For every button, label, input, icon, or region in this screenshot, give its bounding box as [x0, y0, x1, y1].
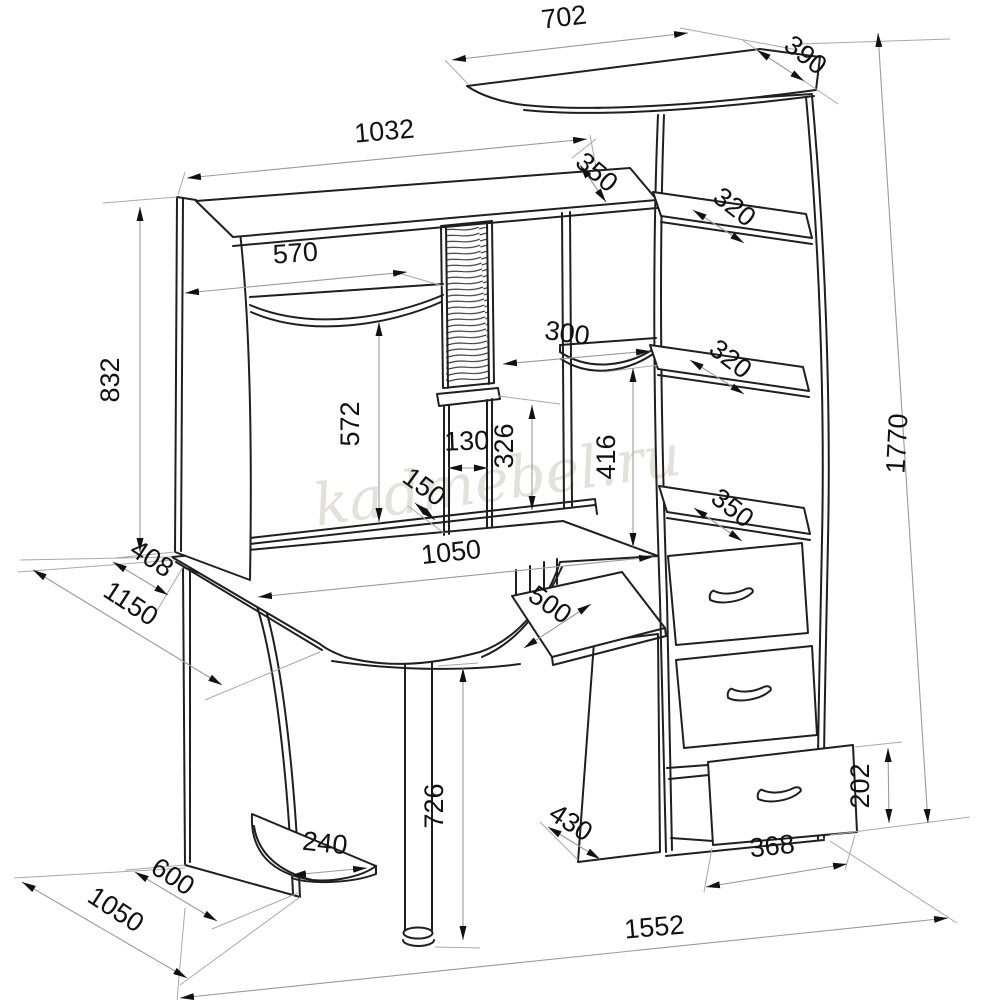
- desk-leg-foot-ring: [403, 940, 434, 946]
- hutch-shelf: [250, 284, 443, 326]
- dim-hutch-height: 832: [95, 357, 125, 402]
- desk-leg-foot: [404, 928, 433, 939]
- dim-niche-height: 326: [489, 423, 519, 468]
- dim-left-total-depth: 1050: [83, 881, 150, 939]
- dim-total-height: 1770: [880, 413, 913, 475]
- dim-line-top-shelf-width: [452, 33, 688, 60]
- cd-rack-slats: [446, 227, 488, 384]
- dim-total-width: 1552: [623, 909, 685, 944]
- dim-cd-rack-height: 572: [335, 401, 365, 446]
- top-shelf-surface: [467, 49, 820, 108]
- dim-desktop-width: 1050: [420, 534, 483, 570]
- dim-back-offset: 408: [125, 534, 179, 584]
- dim-bottom-shelf-depth: 240: [301, 826, 349, 861]
- dim-diagonal-depth: 1150: [98, 575, 163, 632]
- dim-top-shelf-width: 702: [540, 0, 588, 35]
- dim-line-drawer-height: [888, 748, 889, 823]
- dim-line-corner-shelf-depth: [503, 351, 650, 364]
- dim-right-niche-height: 416: [591, 434, 621, 479]
- dim-line-drawer-width: [706, 864, 847, 887]
- drawing-canvas: kadmebel.ru: [0, 0, 1000, 1000]
- dim-drawer-width: 368: [748, 829, 796, 864]
- dim-divider-gap: 130: [444, 425, 490, 457]
- dim-leg-height: 726: [419, 783, 449, 828]
- dim-line-total-width: [180, 918, 948, 998]
- dim-drawer-height: 202: [845, 763, 875, 808]
- dim-hutch-shelf-width: 570: [272, 236, 319, 269]
- hutch-left-panel: [175, 197, 251, 580]
- dim-hutch-width: 1032: [353, 113, 415, 148]
- cd-rack-shelf: [437, 388, 500, 406]
- top-shelf: [467, 49, 820, 113]
- dim-corner-shelf-depth: 300: [543, 315, 592, 351]
- drawer-rails: [667, 765, 713, 841]
- furniture-dimension-drawing: kadmebel.ru: [0, 0, 1000, 1000]
